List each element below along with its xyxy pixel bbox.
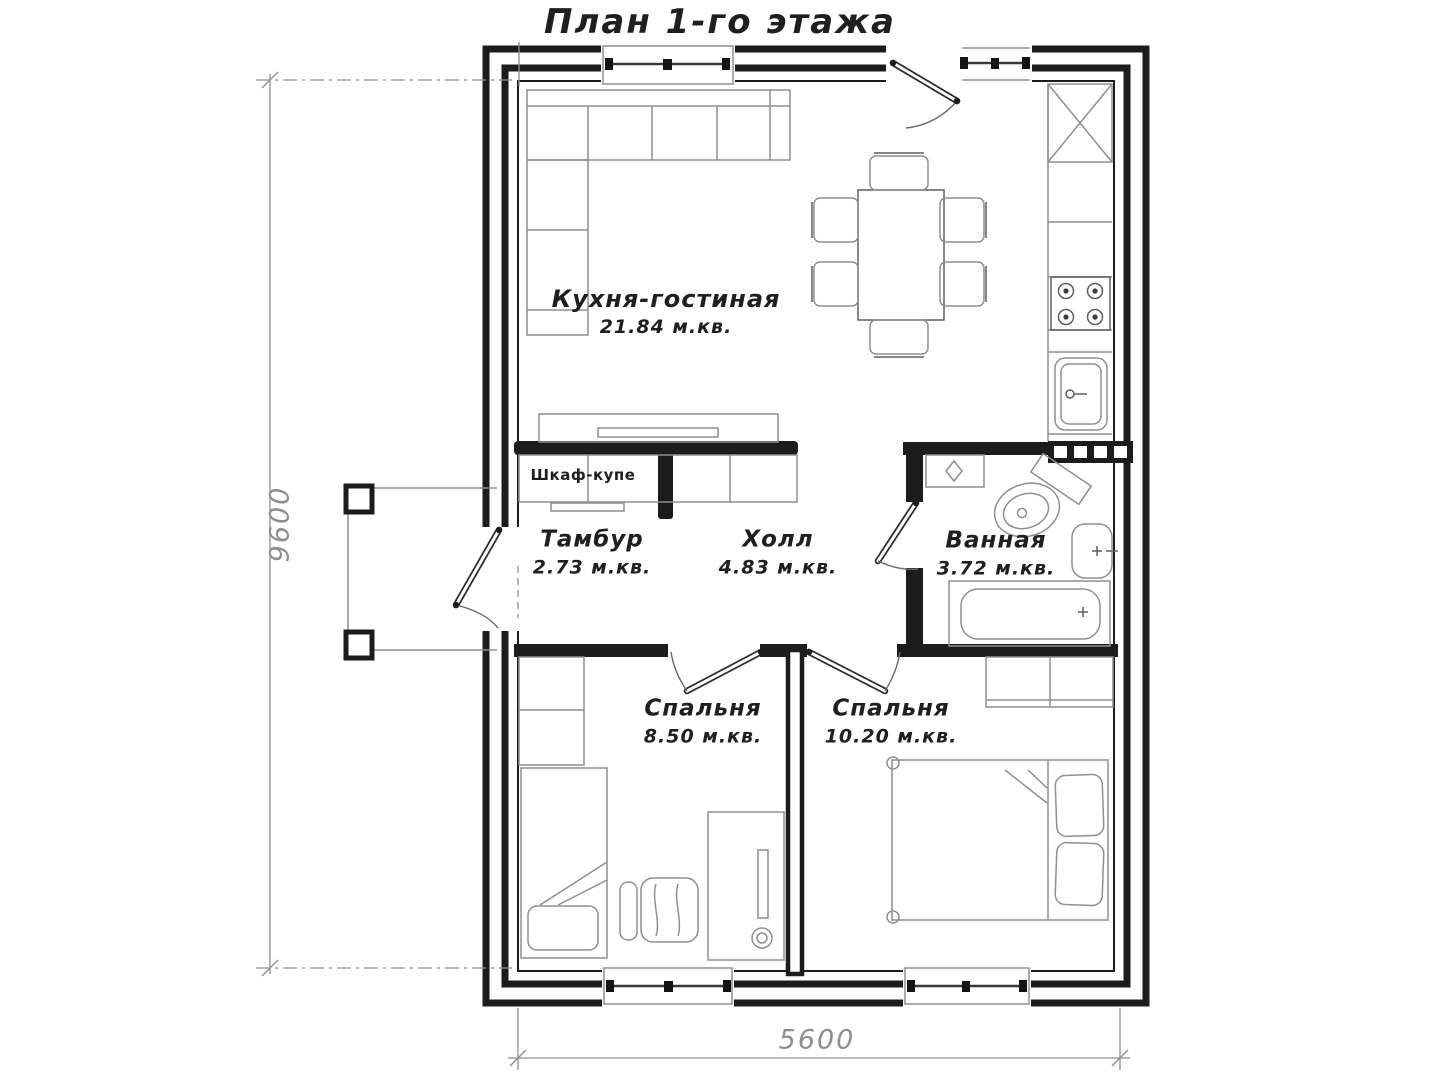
room-name: Холл xyxy=(719,527,837,552)
wall-between-bedrooms xyxy=(788,650,802,974)
dimension-vertical: 9600 xyxy=(265,486,296,563)
desk-chair xyxy=(620,878,698,942)
room-label-bedroom-2: Спальня 10.20 м.кв. xyxy=(825,696,958,747)
room-label-bedroom-1: Спальня 8.50 м.кв. xyxy=(644,696,762,747)
door-bedroom-2 xyxy=(806,649,900,691)
room-area: 2.73 м.кв. xyxy=(533,557,651,579)
floor-plan-page: План 1-го этажа Кухня-гостиная 21.84 м.к… xyxy=(0,0,1440,1080)
kitchen-counter xyxy=(1048,84,1112,441)
room-label-bathroom: Ванная 3.72 м.кв. xyxy=(937,528,1055,579)
desk xyxy=(708,812,784,960)
dimension-horizontal: 5600 xyxy=(779,1025,856,1056)
room-name: Спальня xyxy=(644,696,762,721)
bedroom-2-wardrobe xyxy=(986,657,1113,707)
bathtub xyxy=(949,581,1110,646)
bedroom-1-cabinet xyxy=(519,657,584,765)
room-name: Тамбур xyxy=(533,527,651,552)
room-area: 4.83 м.кв. xyxy=(719,557,837,579)
door-bedroom-1 xyxy=(671,649,764,691)
door-bathroom xyxy=(878,500,919,570)
porch-column xyxy=(346,632,372,658)
bed-single xyxy=(521,768,607,958)
stove xyxy=(1051,277,1110,330)
porch-column xyxy=(346,486,372,512)
outer-walls xyxy=(486,42,1146,1003)
room-name: Спальня xyxy=(825,696,958,721)
bed-double xyxy=(887,757,1108,923)
room-area: 10.20 м.кв. xyxy=(825,726,958,748)
page-title: План 1-го этажа xyxy=(544,2,896,42)
appliance-strip xyxy=(1048,441,1133,463)
room-name: Кухня-гостиная xyxy=(552,286,781,312)
kitchen-sink xyxy=(1055,358,1107,430)
washing-machine xyxy=(926,455,984,487)
room-area: 8.50 м.кв. xyxy=(644,726,762,748)
room-name: Ванная xyxy=(937,528,1055,553)
dining-table-set xyxy=(812,153,986,357)
tv-stand xyxy=(539,414,778,442)
wardrobe-label: Шкаф-купе xyxy=(531,466,636,484)
washbasin xyxy=(1072,524,1118,578)
room-label-kitchen-living: Кухня-гостиная 21.84 м.кв. xyxy=(552,286,781,338)
room-area: 3.72 м.кв. xyxy=(937,558,1055,580)
room-label-tambour: Тамбур 2.73 м.кв. xyxy=(533,527,651,578)
room-area: 21.84 м.кв. xyxy=(552,316,781,338)
room-label-hall: Холл 4.83 м.кв. xyxy=(719,527,837,578)
